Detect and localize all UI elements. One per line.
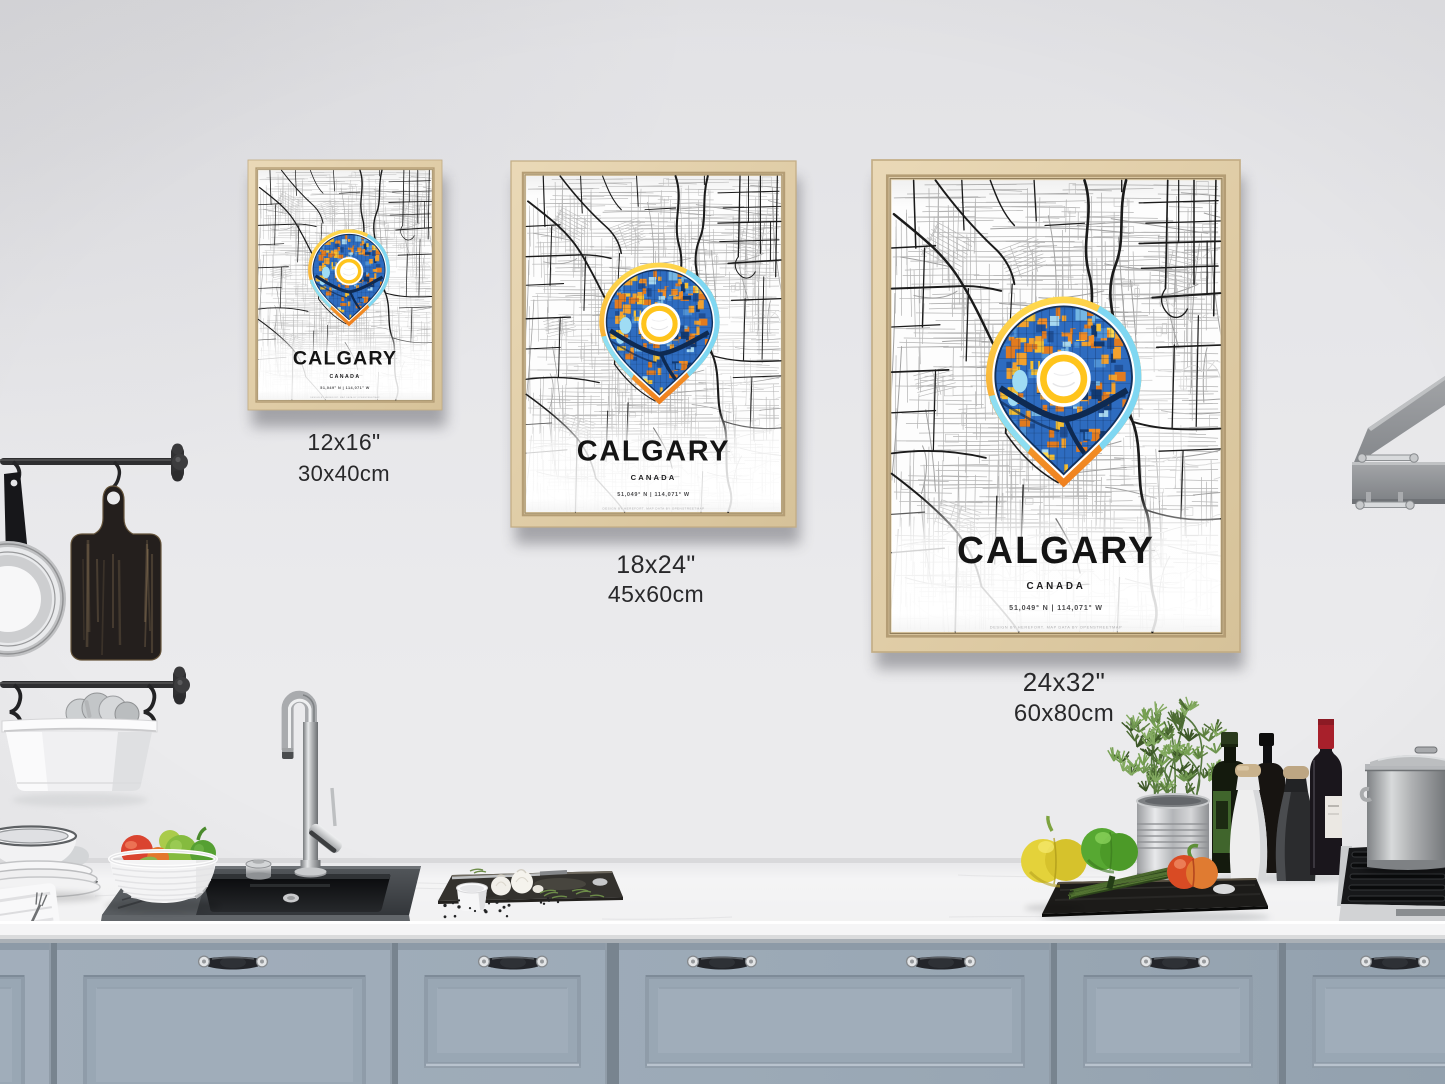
svg-text:18x24": 18x24"	[616, 551, 695, 579]
svg-text:45x60cm: 45x60cm	[608, 581, 704, 607]
svg-text:24x32": 24x32"	[1023, 667, 1105, 697]
svg-text:12x16": 12x16"	[307, 429, 380, 455]
svg-text:30x40cm: 30x40cm	[298, 461, 390, 486]
svg-text:60x80cm: 60x80cm	[1014, 700, 1114, 727]
